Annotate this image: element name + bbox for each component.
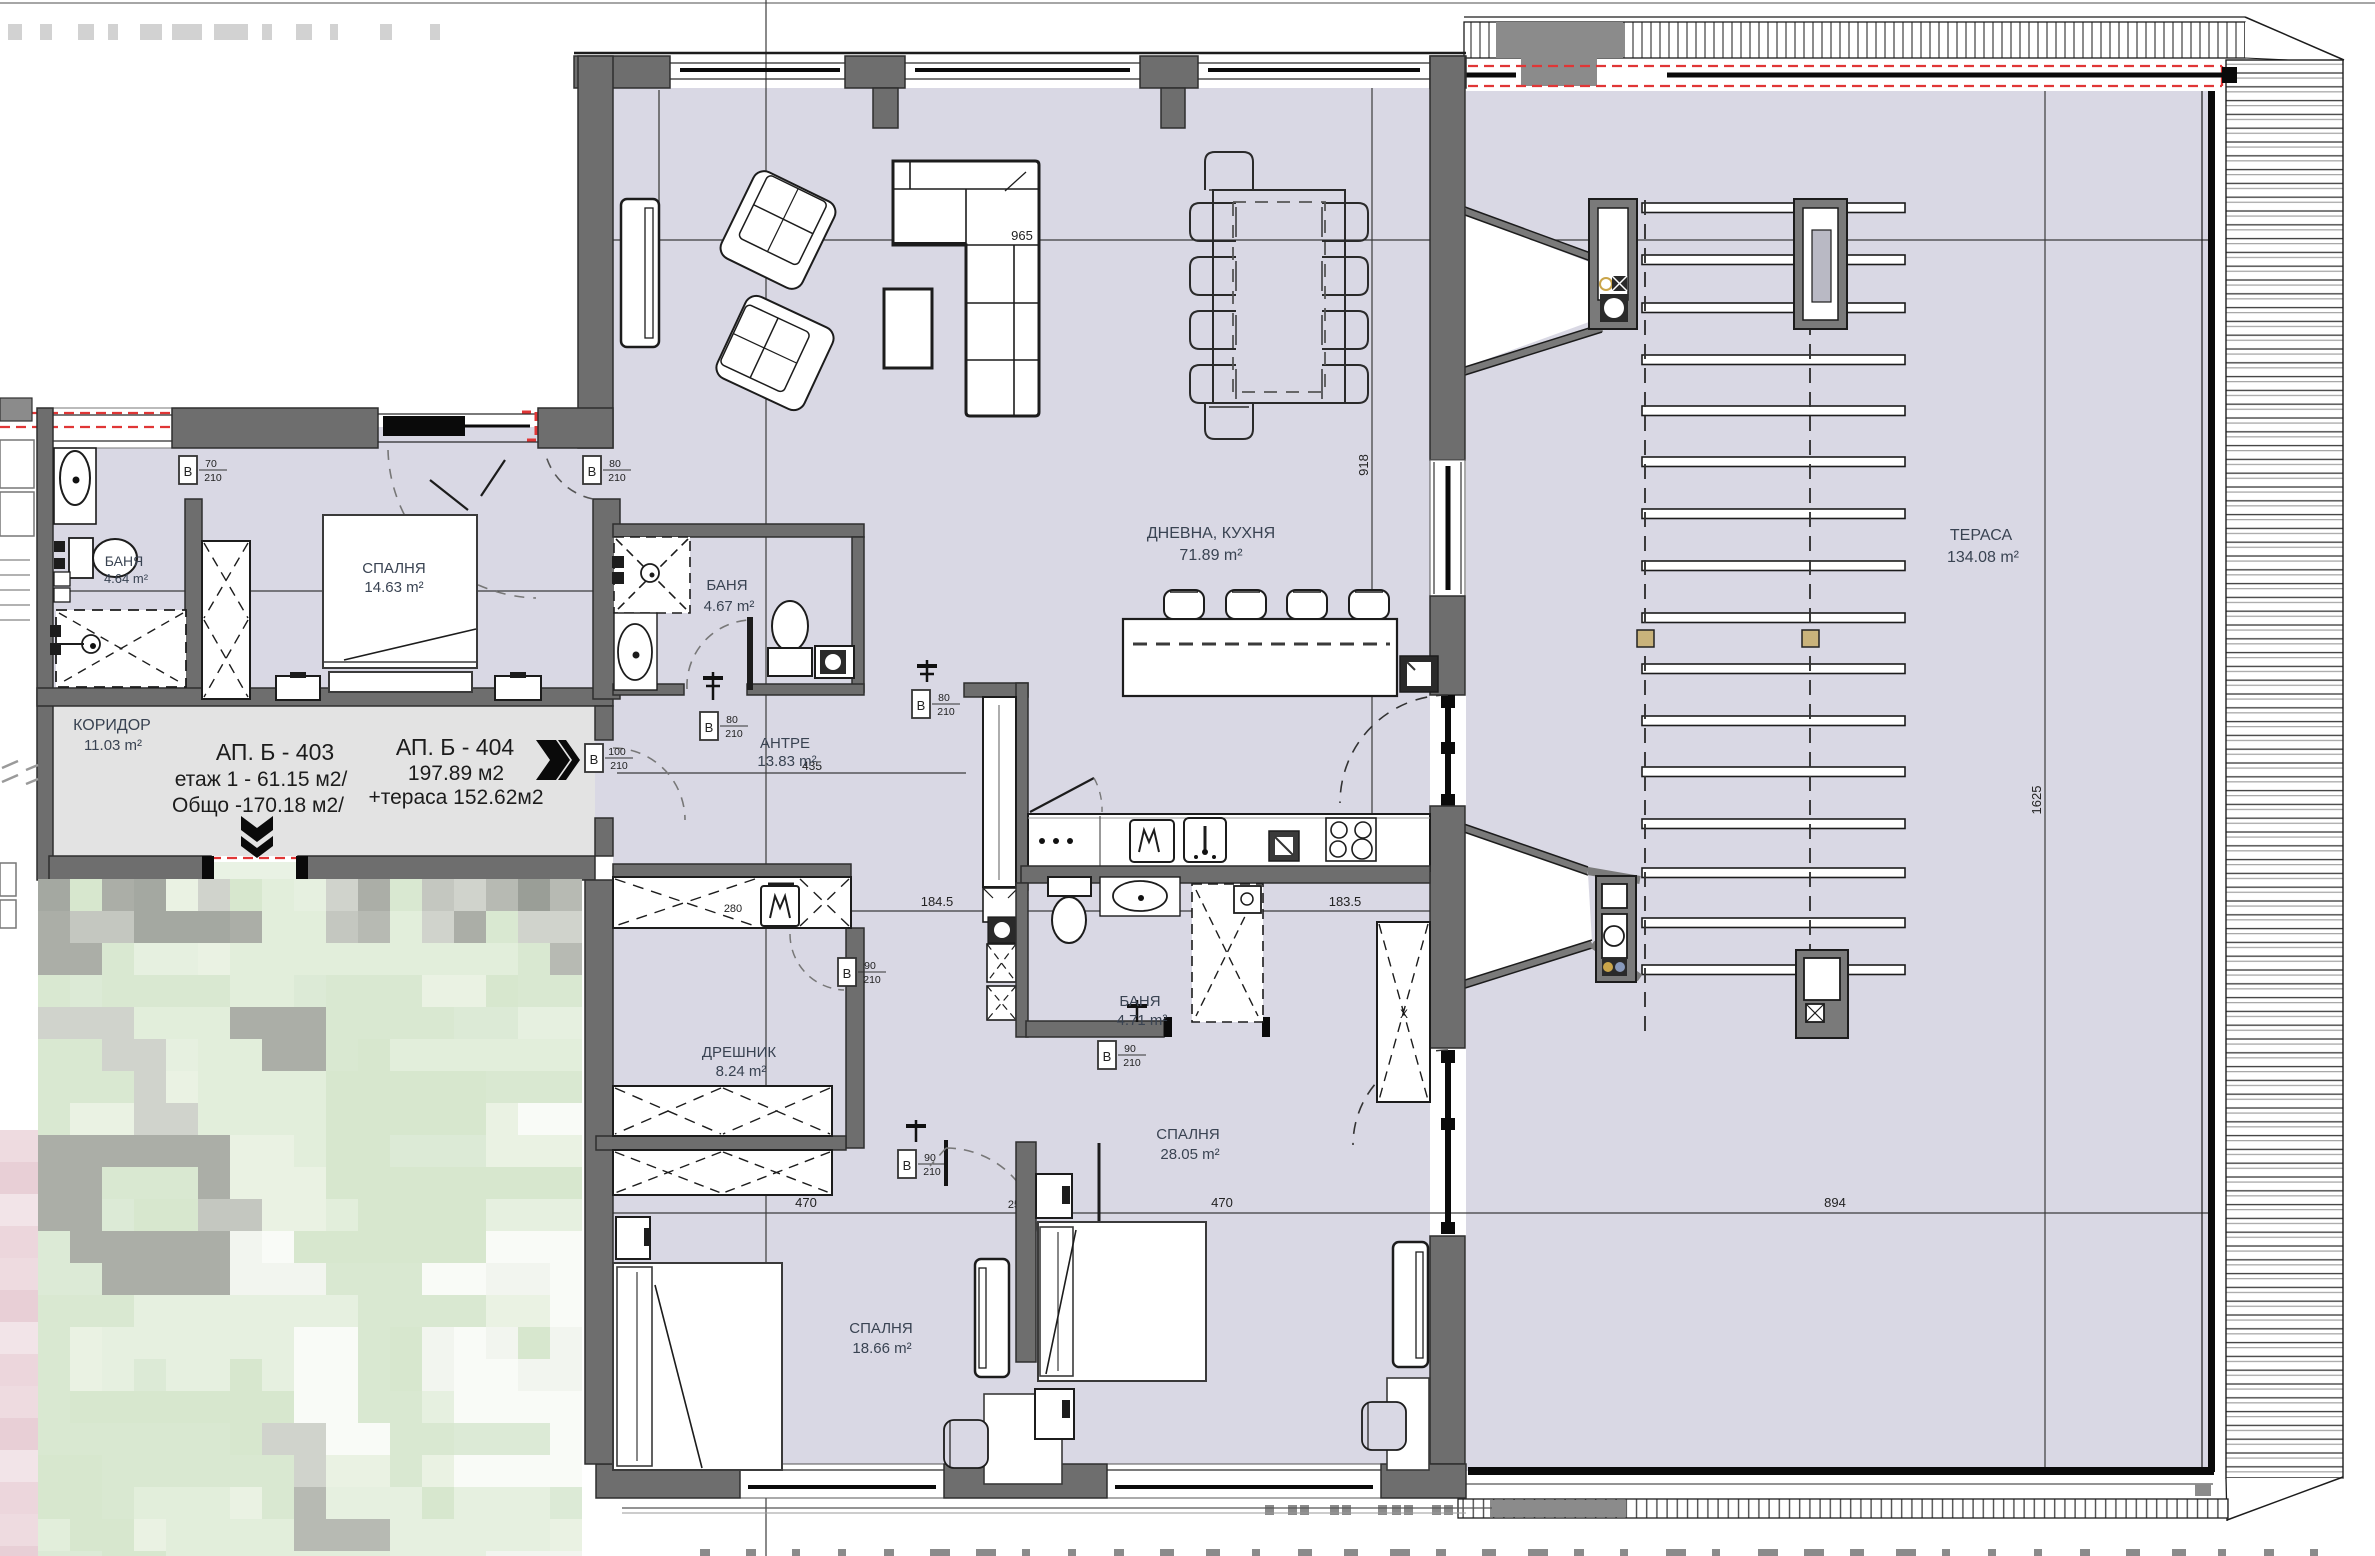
svg-text:ТЕРАСА: ТЕРАСА	[1950, 527, 2013, 544]
svg-text:Общо -170.18 м2/: Общо -170.18 м2/	[172, 794, 344, 817]
svg-text:90: 90	[1124, 1043, 1136, 1055]
svg-text:B: B	[903, 1158, 912, 1173]
svg-text:210: 210	[610, 760, 628, 772]
svg-text:100: 100	[608, 746, 626, 758]
svg-text:470: 470	[795, 1195, 817, 1210]
svg-text:СПАЛНЯ: СПАЛНЯ	[362, 560, 425, 577]
svg-text:965: 965	[1011, 228, 1033, 243]
svg-text:КОРИДОР: КОРИДОР	[73, 717, 151, 734]
svg-text:210: 210	[923, 1166, 941, 1178]
svg-text:14.63 m²: 14.63 m²	[364, 579, 423, 596]
svg-text:БАНЯ: БАНЯ	[1119, 993, 1160, 1010]
svg-text:+тераса 152.62м2: +тераса 152.62м2	[368, 786, 543, 809]
svg-text:B: B	[705, 720, 714, 735]
svg-text:8.24 m²: 8.24 m²	[716, 1063, 767, 1080]
svg-text:71.89 m²: 71.89 m²	[1179, 547, 1243, 564]
svg-text:СПАЛНЯ: СПАЛНЯ	[1156, 1126, 1219, 1143]
svg-text:210: 210	[1123, 1057, 1141, 1069]
svg-text:1625: 1625	[2029, 786, 2044, 815]
svg-text:4.64 m²: 4.64 m²	[104, 571, 149, 586]
svg-text:28.05 m²: 28.05 m²	[1160, 1146, 1219, 1163]
svg-text:B: B	[917, 698, 926, 713]
svg-text:ДНЕВНА, КУХНЯ: ДНЕВНА, КУХНЯ	[1147, 525, 1275, 542]
svg-text:4.67 m²: 4.67 m²	[704, 598, 755, 615]
svg-text:АП. Б - 404: АП. Б - 404	[396, 734, 515, 760]
svg-text:210: 210	[725, 728, 743, 740]
svg-text:80: 80	[609, 458, 621, 470]
svg-text:АП. Б - 403: АП. Б - 403	[216, 739, 334, 765]
svg-text:90: 90	[864, 960, 876, 972]
svg-text:183.5: 183.5	[1329, 894, 1362, 909]
svg-text:210: 210	[937, 706, 955, 718]
svg-text:X: X	[1400, 1007, 1408, 1021]
svg-text:етаж 1 - 61.15 м2/: етаж 1 - 61.15 м2/	[175, 768, 348, 791]
svg-text:B: B	[184, 464, 193, 479]
svg-text:B: B	[590, 752, 599, 767]
svg-text:70: 70	[205, 458, 217, 470]
svg-text:80: 80	[938, 692, 950, 704]
svg-text:210: 210	[204, 472, 222, 484]
svg-text:197.89 м2: 197.89 м2	[408, 762, 504, 785]
svg-text:18.66 m²: 18.66 m²	[852, 1340, 911, 1357]
svg-text:ДРЕШНИК: ДРЕШНИК	[702, 1044, 777, 1061]
svg-text:210: 210	[863, 974, 881, 986]
svg-text:4.71 m²: 4.71 m²	[1117, 1012, 1168, 1029]
svg-text:918: 918	[1356, 454, 1371, 476]
svg-text:B: B	[588, 464, 597, 479]
svg-text:80: 80	[726, 714, 738, 726]
svg-text:280: 280	[724, 903, 742, 915]
svg-text:894: 894	[1824, 1195, 1846, 1210]
svg-text:210: 210	[608, 472, 626, 484]
svg-text:470: 470	[1211, 1195, 1233, 1210]
svg-text:B: B	[843, 966, 852, 981]
svg-text:B: B	[1103, 1049, 1112, 1064]
svg-text:184.5: 184.5	[921, 894, 954, 909]
svg-text:СПАЛНЯ: СПАЛНЯ	[849, 1320, 912, 1337]
svg-text:АНТРЕ: АНТРЕ	[760, 735, 810, 752]
svg-text:БАНЯ: БАНЯ	[105, 553, 143, 569]
svg-text:13.83 m²: 13.83 m²	[757, 753, 816, 770]
svg-text:11.03 m²: 11.03 m²	[84, 737, 142, 754]
svg-text:БАНЯ: БАНЯ	[706, 577, 747, 594]
svg-text:134.08 m²: 134.08 m²	[1947, 549, 2020, 566]
